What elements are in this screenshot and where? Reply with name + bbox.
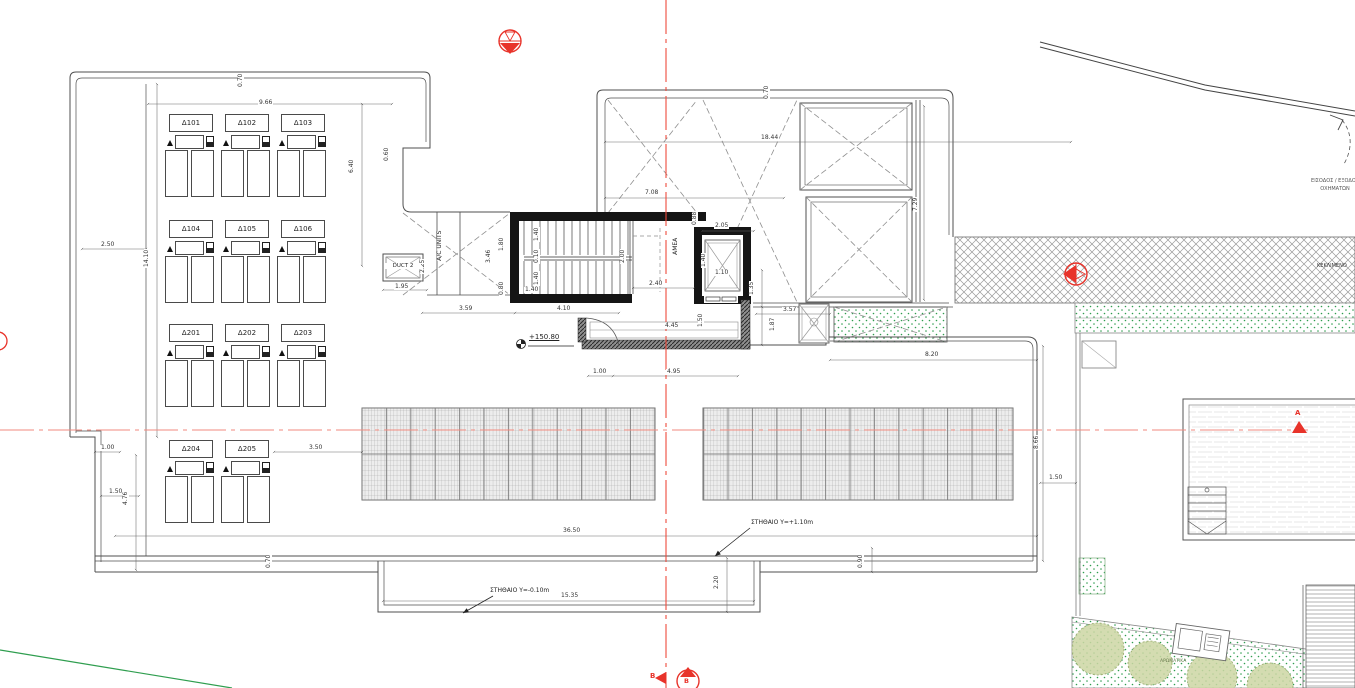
text-label: ΟΧΗΜΑΤΩΝ [1280, 187, 1355, 193]
dimension-label: 1.40 [701, 253, 707, 268]
dimension-label: 2.05 [714, 223, 729, 229]
dimension-label: 4.76 [123, 491, 129, 506]
dimension-label: 4.10 [556, 306, 571, 312]
ac-outdoor-units [221, 150, 273, 197]
drain-icon [262, 242, 270, 253]
valve-icon [223, 140, 229, 146]
fan-coil-box [175, 345, 204, 359]
dimension-label: 0.10 [534, 249, 540, 264]
drain-icon [262, 462, 270, 473]
text-label: +150.80 [529, 333, 559, 341]
dimension-label: 1.40 [524, 287, 539, 293]
ac-unit-label: Δ103 [281, 114, 325, 132]
ac-outdoor-units [165, 360, 217, 407]
ac-unit-group: Δ204 [165, 440, 217, 523]
ac-outdoor-unit [191, 150, 214, 197]
ac-outdoor-units [165, 150, 217, 197]
dimension-label: 8.66 [1034, 435, 1040, 450]
ac-outdoor-unit [165, 360, 188, 407]
dimension-label: 3.59 [458, 306, 473, 312]
ac-outdoor-units [165, 476, 217, 523]
dimension-label: 7.08 [644, 190, 659, 196]
ac-fan-coil [221, 344, 273, 359]
ac-outdoor-units [221, 360, 273, 407]
dimension-label: 6.40 [349, 159, 355, 174]
dimension-label: 4.45 [664, 323, 679, 329]
drain-icon [206, 462, 214, 473]
ac-outdoor-unit [191, 360, 214, 407]
ac-outdoor-units [277, 150, 329, 197]
ac-outdoor-units [221, 256, 273, 303]
ac-unit-label: Δ203 [281, 324, 325, 342]
valve-icon [223, 350, 229, 356]
text-label: ΕΙΣΟΔΟΣ / ΕΞΟΔΟΣ [1280, 179, 1355, 185]
ac-unit-group: Δ205 [221, 440, 273, 523]
dimension-label: 1.10 [714, 270, 729, 276]
ac-unit-group: Δ202 [221, 324, 273, 407]
ac-outdoor-unit [221, 256, 244, 303]
dimension-label: 1.35 [749, 281, 755, 296]
dimension-label: 15.35 [560, 593, 579, 599]
ac-fan-coil [221, 134, 273, 149]
ac-unit-group: Δ105 [221, 220, 273, 303]
ac-unit-label: Δ204 [169, 440, 213, 458]
dimension-label: 1.40 [534, 271, 540, 286]
ac-unit-group: Δ103 [277, 114, 329, 197]
dimension-label: 1.00 [100, 445, 115, 451]
dimension-label: 1.40 [534, 227, 540, 242]
dimension-label: 3.46 [486, 249, 492, 264]
fan-coil-box [175, 461, 204, 475]
dimension-label: 4.95 [666, 369, 681, 375]
text-label: B [684, 678, 689, 685]
drain-icon [262, 346, 270, 357]
dimension-label: 9.66 [258, 100, 273, 106]
ac-unit-label: Δ102 [225, 114, 269, 132]
ac-fan-coil [221, 240, 273, 255]
dimension-label: 18.44 [760, 135, 779, 141]
fan-coil-box [287, 241, 316, 255]
labels-layer: 0.709.662.5014.106.400.601.001.504.763.5… [0, 0, 1355, 688]
ac-unit-group: Δ104 [165, 220, 217, 303]
ac-fan-coil [165, 134, 217, 149]
floor-plan-page: 0.709.662.5014.106.400.601.001.504.763.5… [0, 0, 1355, 688]
ac-unit-label: Δ201 [169, 324, 213, 342]
text-label: ΣΤΗΘΑΙΟ Υ=+1.10m [751, 520, 813, 527]
dimension-label: 2.50 [100, 242, 115, 248]
drain-icon [318, 242, 326, 253]
valve-icon [279, 246, 285, 252]
text-label: ΚΕΚΛΙΜΕΝΟ [1317, 264, 1347, 270]
ac-unit-label: Δ205 [225, 440, 269, 458]
dimension-label: 0.60 [384, 147, 390, 162]
ac-unit-label: Δ104 [169, 220, 213, 238]
dimension-label: 3.50 [308, 445, 323, 451]
ac-unit-label: Δ106 [281, 220, 325, 238]
ac-outdoor-unit [247, 150, 270, 197]
dimension-label: 0.90 [858, 554, 864, 569]
dimension-label: 1.50 [1048, 475, 1063, 481]
drain-icon [206, 242, 214, 253]
dimension-label: 3.57 [782, 307, 797, 313]
drain-icon [206, 136, 214, 147]
drain-icon [318, 136, 326, 147]
dimension-label: 36.50 [562, 528, 581, 534]
dimension-label: 2.40 [648, 281, 663, 287]
ac-unit-group: Δ201 [165, 324, 217, 407]
valve-icon [167, 140, 173, 146]
ac-fan-coil [165, 460, 217, 475]
fan-coil-box [231, 241, 260, 255]
ac-outdoor-units [221, 476, 273, 523]
dimension-label: 0.88 [692, 211, 698, 226]
drain-icon [262, 136, 270, 147]
ac-unit-label: Δ101 [169, 114, 213, 132]
ac-outdoor-unit [303, 150, 326, 197]
ac-outdoor-unit [247, 360, 270, 407]
ac-unit-group: Δ102 [221, 114, 273, 197]
ac-unit-group: Δ203 [277, 324, 329, 407]
dimension-label: 1.87 [770, 317, 776, 332]
text-label: B [650, 672, 655, 680]
ac-outdoor-unit [303, 360, 326, 407]
valve-icon [167, 246, 173, 252]
dimension-label: 14.10 [144, 249, 150, 268]
valve-icon [279, 140, 285, 146]
ac-outdoor-unit [191, 476, 214, 523]
ac-fan-coil [165, 240, 217, 255]
ac-unit-label: Δ202 [225, 324, 269, 342]
fan-coil-box [231, 461, 260, 475]
dimension-label: 2.00 [620, 249, 626, 264]
ac-fan-coil [277, 240, 329, 255]
dimension-label: 0.70 [266, 554, 272, 569]
ac-outdoor-unit [165, 256, 188, 303]
valve-icon [279, 350, 285, 356]
dimension-label: 1.50 [698, 313, 704, 328]
ac-outdoor-unit [221, 360, 244, 407]
ac-unit-label: Δ105 [225, 220, 269, 238]
ac-outdoor-unit [165, 150, 188, 197]
valve-icon [167, 466, 173, 472]
drain-icon [206, 346, 214, 357]
ac-outdoor-unit [247, 476, 270, 523]
text-label: A/C UNITS [437, 231, 444, 261]
text-label: DUCT 2 [385, 263, 421, 269]
dimension-label: 1.80 [499, 237, 505, 252]
dimension-label: 2.20 [714, 575, 720, 590]
dimension-label: 0.70 [238, 73, 244, 88]
ac-outdoor-units [277, 256, 329, 303]
ac-fan-coil [221, 460, 273, 475]
ac-outdoor-units [277, 360, 329, 407]
fan-coil-box [287, 345, 316, 359]
valve-icon [167, 350, 173, 356]
ac-unit-group: Δ106 [277, 220, 329, 303]
valve-icon [223, 246, 229, 252]
ac-outdoor-unit [247, 256, 270, 303]
fan-coil-box [175, 135, 204, 149]
text-label: ΑΡΩΜΑΤΙΚΑ [1160, 659, 1186, 664]
text-label: ΣΤΗΘΑΙΟ Υ=-0.10m [490, 588, 549, 595]
valve-icon [223, 466, 229, 472]
ac-outdoor-unit [191, 256, 214, 303]
ac-outdoor-units [165, 256, 217, 303]
ac-outdoor-unit [221, 150, 244, 197]
dimension-label: 0.70 [764, 85, 770, 100]
ac-outdoor-unit [165, 476, 188, 523]
ac-outdoor-unit [277, 256, 300, 303]
dimension-label: 7.29 [913, 197, 919, 212]
dimension-label: 1.00 [592, 369, 607, 375]
ac-fan-coil [165, 344, 217, 359]
ac-fan-coil [277, 134, 329, 149]
ac-outdoor-unit [277, 360, 300, 407]
text-label: A [1295, 409, 1300, 417]
ac-unit-group: Δ101 [165, 114, 217, 197]
fan-coil-box [231, 135, 260, 149]
ac-outdoor-unit [221, 476, 244, 523]
dimension-label: 1.95 [394, 284, 409, 290]
drain-icon [318, 346, 326, 357]
text-label: AMEA [673, 238, 680, 255]
fan-coil-box [231, 345, 260, 359]
ac-outdoor-unit [277, 150, 300, 197]
dimension-label: 8.20 [924, 352, 939, 358]
dimension-label: 0.80 [499, 281, 505, 296]
ac-outdoor-unit [303, 256, 326, 303]
fan-coil-box [287, 135, 316, 149]
ac-fan-coil [277, 344, 329, 359]
fan-coil-box [175, 241, 204, 255]
